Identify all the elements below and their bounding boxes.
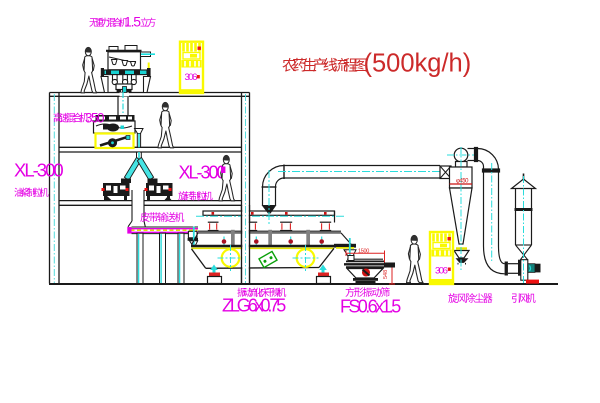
svg-text:旋转制粒机: 旋转制粒机 — [178, 191, 213, 203]
svg-text:350: 350 — [85, 111, 104, 126]
svg-text:无重力混合机: 无重力混合机 — [89, 17, 129, 29]
svg-text:548: 548 — [383, 270, 389, 279]
svg-text:油桨制粒机: 油桨制粒机 — [14, 187, 49, 199]
svg-text:306: 306 — [435, 266, 448, 277]
svg-text:FS0.6x1.5: FS0.6x1.5 — [340, 297, 401, 317]
svg-text:ZLG6x0.75: ZLG6x0.75 — [222, 296, 286, 316]
svg-text:1.5: 1.5 — [124, 14, 141, 30]
svg-text:XL-300: XL-300 — [14, 160, 63, 181]
svg-text:立方: 立方 — [140, 17, 156, 29]
svg-text:农药生产线流程图: 农药生产线流程图 — [282, 58, 367, 75]
svg-text:旋风除尘器: 旋风除尘器 — [448, 292, 493, 305]
svg-text:皮带输送机: 皮带输送机 — [140, 211, 184, 224]
svg-text:1500: 1500 — [358, 249, 369, 255]
svg-text:引风机: 引风机 — [511, 292, 536, 305]
svg-text:高速混合机: 高速混合机 — [53, 112, 89, 125]
svg-text:(500kg/h): (500kg/h) — [364, 50, 472, 78]
svg-text:306: 306 — [185, 72, 198, 83]
svg-text:XL-300: XL-300 — [179, 163, 227, 183]
